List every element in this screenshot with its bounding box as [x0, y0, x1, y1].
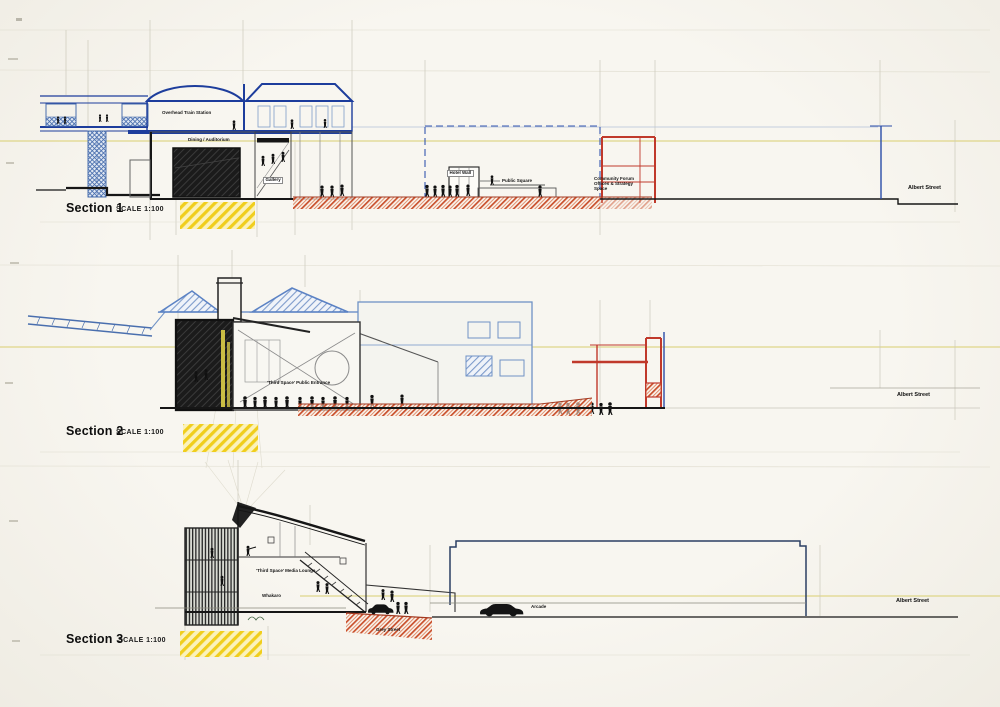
- background-elevation-2: [350, 302, 532, 408]
- barrel-roof: [147, 86, 243, 101]
- elevated-walkway: [28, 312, 165, 336]
- elevated-rail-station: [36, 96, 160, 197]
- yellow-ground-highlight-2: [183, 424, 258, 452]
- section-1-drawing: [36, 20, 960, 240]
- background-roofs-2: [158, 278, 370, 322]
- label-albert-street-1: Albert Street: [908, 186, 941, 192]
- label-grey-street: Grey Street: [376, 628, 400, 633]
- sections-drawing: [0, 0, 1000, 707]
- main-building-3: [185, 502, 455, 625]
- section-2-scale: SCALE 1:100: [116, 429, 164, 437]
- label-community-forum: Community Forum Offices & Strategy Space: [594, 177, 646, 192]
- louver-block: [185, 528, 238, 625]
- atrium-hall: [233, 322, 360, 410]
- stair-3: [300, 552, 368, 612]
- street-3: [155, 602, 958, 657]
- roof-fin: [232, 502, 256, 528]
- label-whakaro: Whakaro: [262, 594, 281, 599]
- red-ground-hatch: [293, 197, 600, 209]
- section-3-drawing: [155, 460, 958, 660]
- label-albert-street-2: Albert Street: [897, 393, 930, 399]
- construction-lines-3: [185, 460, 820, 660]
- auditorium-cut: [173, 148, 240, 197]
- chimney: [218, 278, 241, 322]
- drawing-sheet: Section 1 SCALE 1:100 Overhead Train Sta…: [0, 0, 1000, 707]
- label-public-square: Public Square: [502, 179, 532, 184]
- hip-roof: [246, 84, 352, 101]
- section-2-drawing: [28, 250, 980, 468]
- label-overhead-station: Overhead Train Station: [162, 111, 211, 116]
- red-frame-building-1: [602, 137, 655, 203]
- section-1-title: Section 1: [66, 202, 123, 216]
- section-3-title: Section 3: [66, 633, 123, 647]
- yellow-ground-highlight: [180, 202, 255, 229]
- main-building-2: [176, 318, 360, 410]
- label-albert-street-3: Albert Street: [896, 599, 929, 605]
- yellow-ground-highlight-3: [180, 631, 262, 657]
- stair-core: [255, 132, 291, 199]
- label-arcade: Arcade: [531, 605, 546, 610]
- label-hotel-wall: Hotel Wall: [447, 170, 474, 177]
- street-line: [600, 199, 958, 204]
- section-1-scale: SCALE 1:100: [116, 206, 164, 214]
- label-third-space-entrance: 'Third Space' Public Entrance: [267, 381, 330, 386]
- background-building-3: [430, 541, 806, 616]
- label-gallery: Gallery: [263, 177, 283, 184]
- label-third-space-lounge: 'Third Space' Media Lounge: [256, 569, 315, 574]
- swoop-roof: [238, 506, 365, 541]
- section-3-scale: SCALE 1:100: [118, 637, 166, 645]
- section-2-title: Section 2: [66, 425, 123, 439]
- red-frame-building-2: [572, 332, 664, 407]
- label-dining-auditorium: Dining / Auditorium: [188, 138, 230, 143]
